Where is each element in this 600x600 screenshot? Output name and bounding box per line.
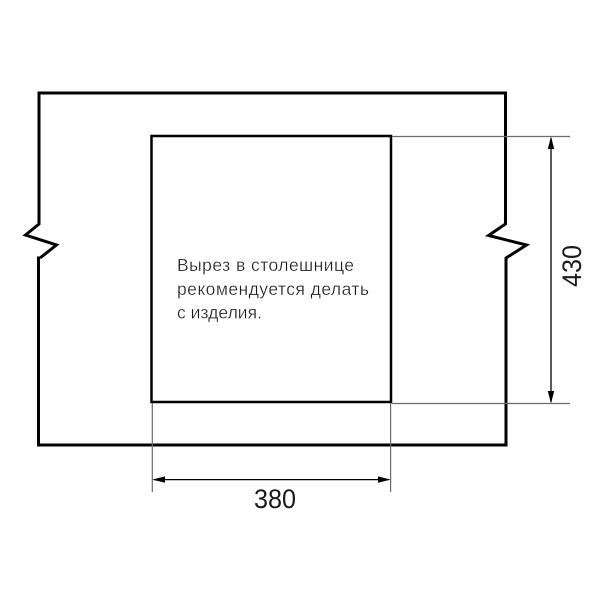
svg-text:рекомендуется делать: рекомендуется делать — [177, 279, 369, 299]
svg-text:Вырез в столешнице: Вырез в столешнице — [177, 255, 354, 275]
svg-text:с изделия.: с изделия. — [177, 303, 262, 323]
svg-text:380: 380 — [254, 484, 296, 514]
svg-text:430: 430 — [557, 245, 587, 287]
